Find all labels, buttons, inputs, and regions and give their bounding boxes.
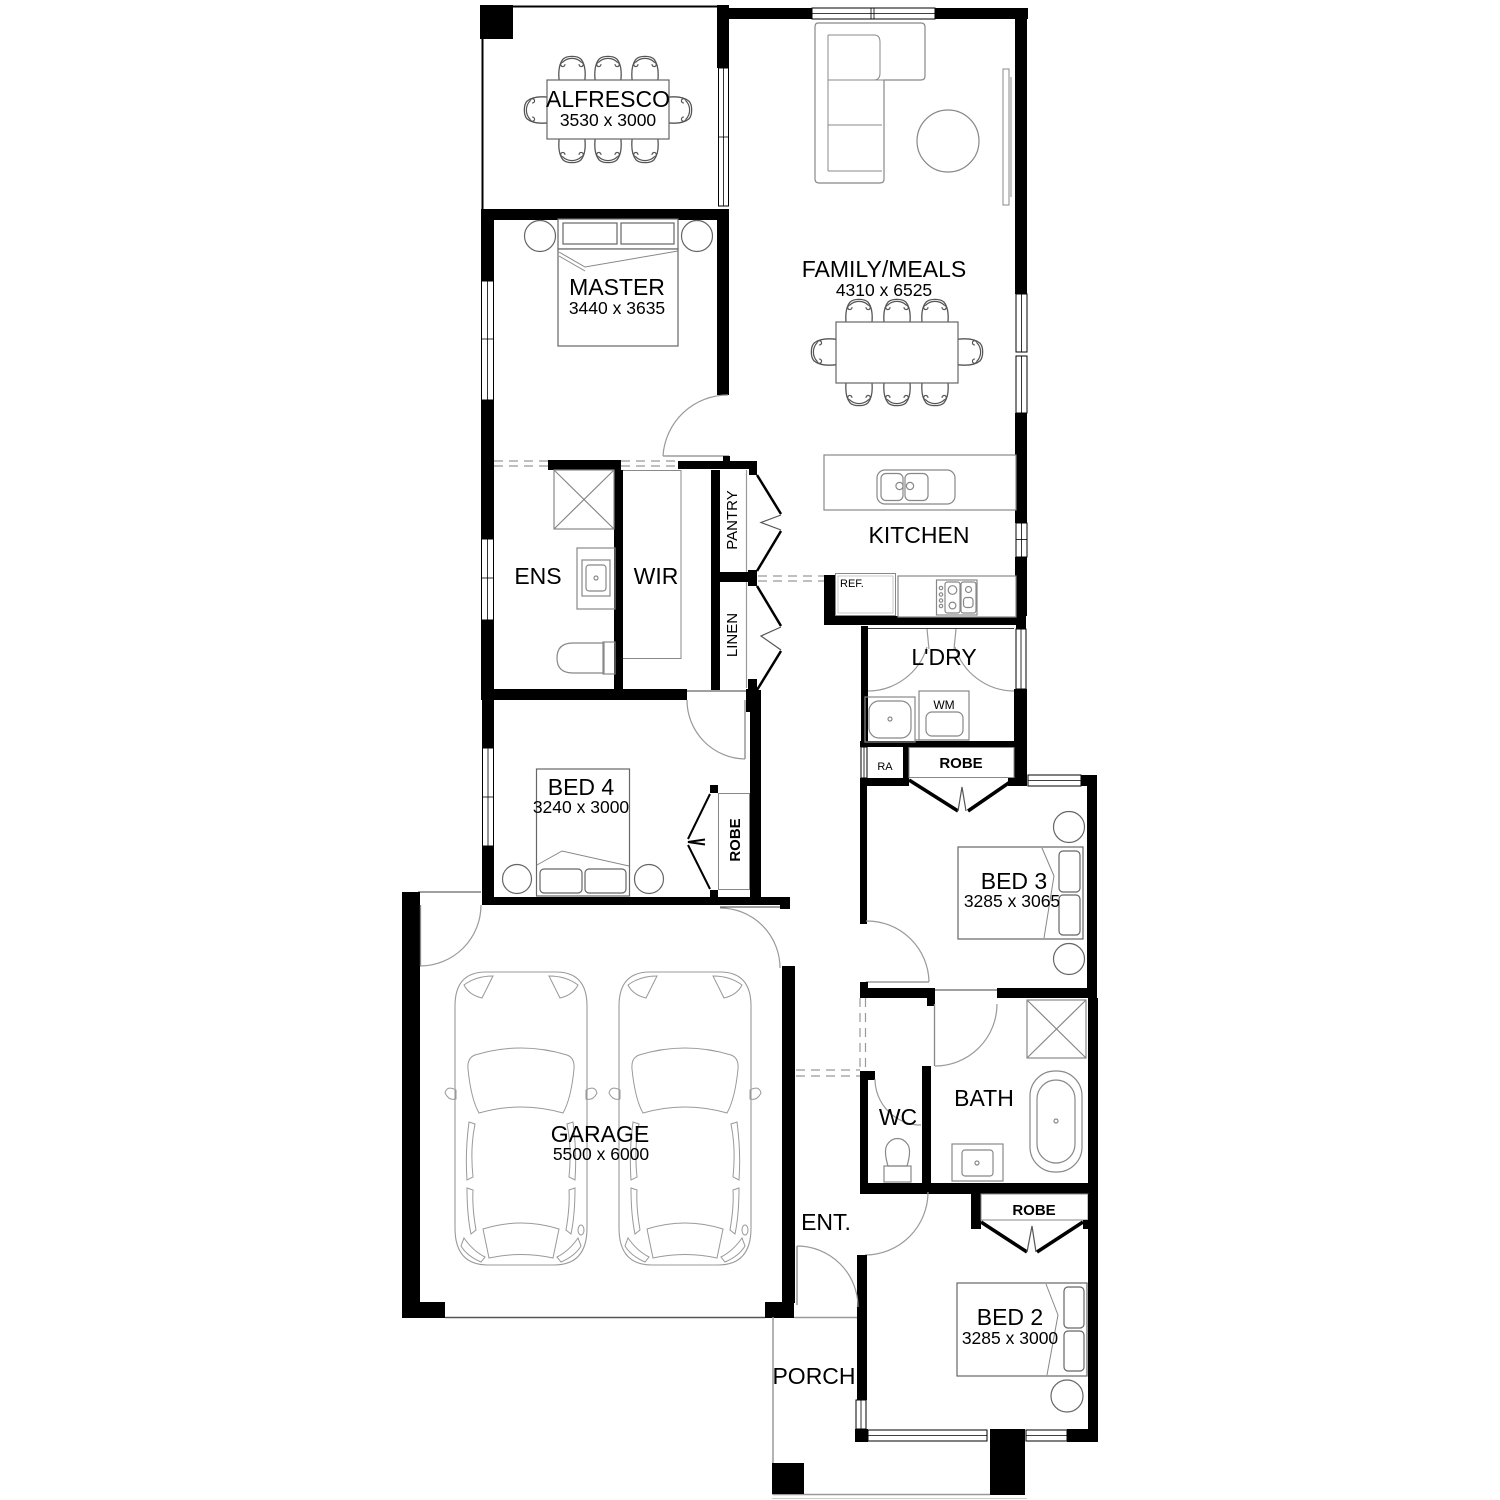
svg-text:5500 x 6000: 5500 x 6000 bbox=[553, 1144, 650, 1164]
svg-text:MASTER: MASTER bbox=[569, 274, 665, 300]
svg-text:FAMILY/MEALS: FAMILY/MEALS bbox=[802, 256, 966, 282]
svg-text:ENS: ENS bbox=[514, 563, 561, 589]
svg-text:3285 x 3065: 3285 x 3065 bbox=[964, 891, 1060, 911]
svg-text:3530 x 3000: 3530 x 3000 bbox=[560, 110, 657, 130]
svg-text:ROBE: ROBE bbox=[1012, 1202, 1055, 1219]
svg-text:PORCH: PORCH bbox=[772, 1363, 855, 1389]
svg-text:L'DRY: L'DRY bbox=[911, 644, 976, 670]
svg-text:3440 x 3635: 3440 x 3635 bbox=[569, 298, 665, 318]
svg-text:WIR: WIR bbox=[634, 563, 679, 589]
svg-text:RA: RA bbox=[877, 761, 893, 773]
svg-text:ROBE: ROBE bbox=[727, 818, 744, 861]
svg-text:ROBE: ROBE bbox=[939, 755, 982, 772]
svg-text:REF.: REF. bbox=[840, 578, 864, 590]
svg-text:ALFRESCO: ALFRESCO bbox=[546, 86, 670, 112]
svg-text:BED 2: BED 2 bbox=[977, 1304, 1043, 1330]
svg-text:BATH: BATH bbox=[954, 1085, 1014, 1111]
svg-text:ENT.: ENT. bbox=[801, 1209, 851, 1235]
svg-text:3240 x 3000: 3240 x 3000 bbox=[533, 797, 630, 817]
svg-text:KITCHEN: KITCHEN bbox=[869, 522, 970, 548]
svg-text:3285 x 3000: 3285 x 3000 bbox=[962, 1328, 1059, 1348]
svg-text:WM: WM bbox=[933, 698, 954, 712]
svg-text:LINEN: LINEN bbox=[724, 613, 741, 657]
svg-text:WC: WC bbox=[879, 1104, 917, 1130]
svg-text:4310 x 6525: 4310 x 6525 bbox=[836, 280, 932, 300]
svg-text:PANTRY: PANTRY bbox=[724, 490, 741, 549]
